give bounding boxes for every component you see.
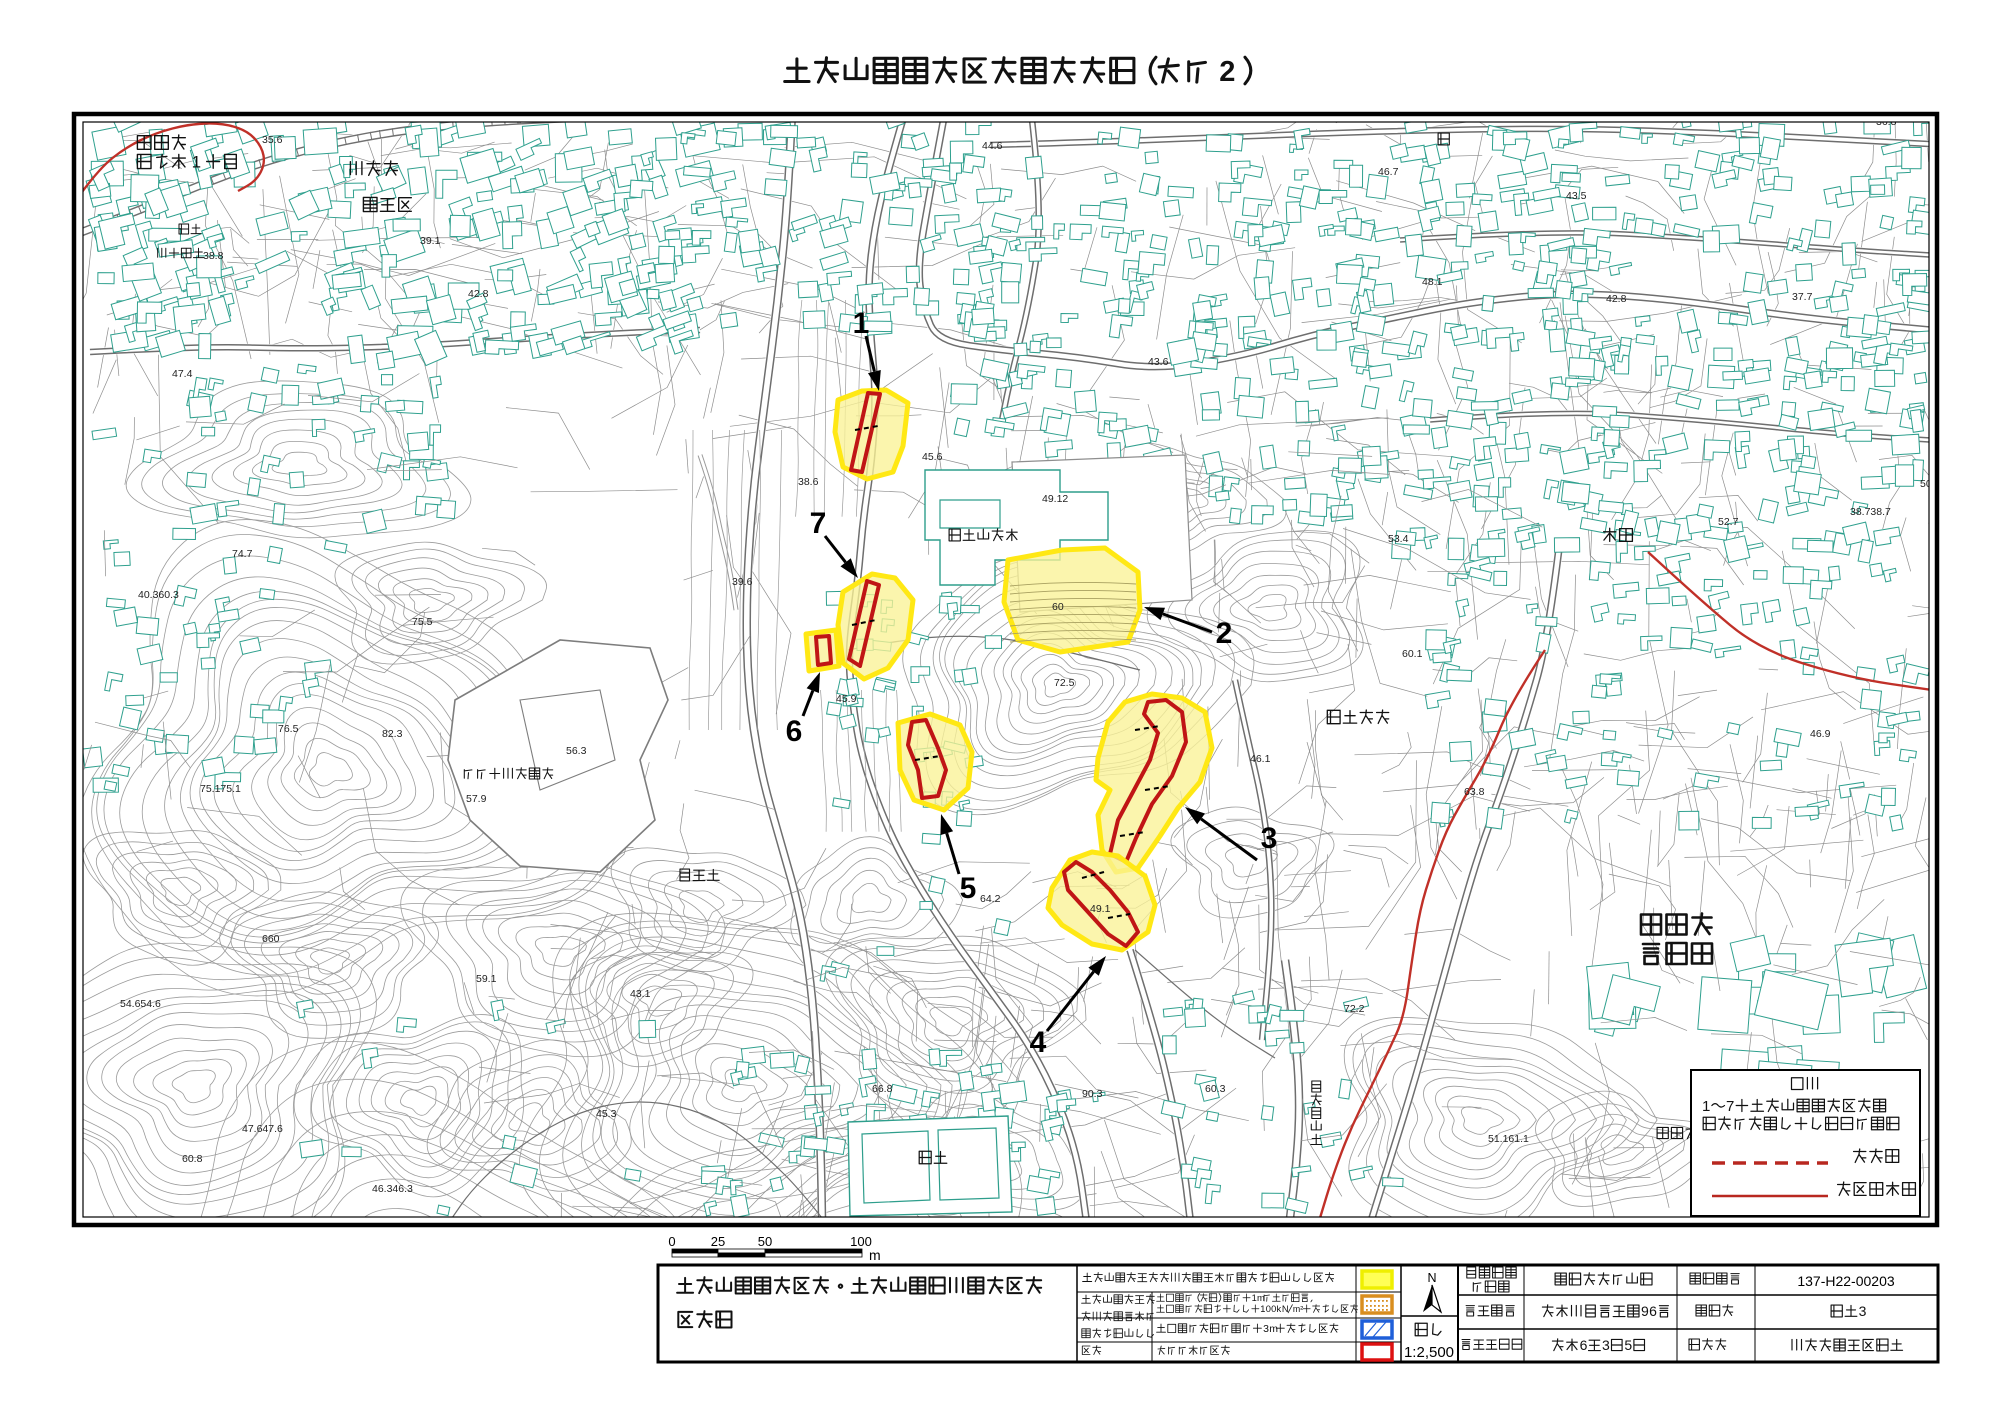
svg-text:63.8: 63.8	[1464, 786, 1485, 798]
svg-text:42.8: 42.8	[1606, 293, 1627, 305]
svg-text:2: 2	[1219, 56, 1235, 88]
svg-text:1: 1	[1252, 1293, 1257, 1303]
svg-text:137-H22-00203: 137-H22-00203	[1797, 1273, 1895, 1289]
svg-text:1: 1	[192, 153, 201, 172]
svg-text:75.5: 75.5	[412, 616, 433, 628]
svg-text:0: 0	[1271, 1304, 1276, 1314]
svg-text:0: 0	[668, 1234, 675, 1249]
svg-text:3: 3	[1602, 1337, 1610, 1353]
svg-text:1: 1	[1260, 1304, 1265, 1314]
svg-text:49.1: 49.1	[1090, 903, 1111, 915]
svg-text:2: 2	[1216, 617, 1233, 650]
svg-text:6: 6	[1580, 1337, 1588, 1353]
svg-text:39.1: 39.1	[420, 235, 441, 247]
svg-text:72.2: 72.2	[1344, 1003, 1365, 1015]
svg-text:60.3: 60.3	[1205, 1083, 1226, 1095]
svg-text:m²: m²	[1293, 1304, 1303, 1314]
svg-text:5: 5	[1624, 1337, 1632, 1353]
svg-text:47.4: 47.4	[172, 368, 193, 380]
svg-text:46.1: 46.1	[1250, 753, 1271, 765]
svg-text:48.1: 48.1	[1422, 276, 1443, 288]
svg-text:38.8: 38.8	[203, 250, 224, 262]
svg-text:45.3: 45.3	[596, 1108, 617, 1120]
svg-text:64.2: 64.2	[980, 893, 1001, 905]
svg-text:56.3: 56.3	[566, 745, 587, 757]
svg-text:m: m	[869, 1247, 881, 1263]
svg-text:3: 3	[1263, 1323, 1269, 1335]
svg-text:3: 3	[1859, 1303, 1867, 1319]
svg-text:66.8: 66.8	[872, 1083, 893, 1095]
svg-text:82.3: 82.3	[382, 728, 403, 740]
svg-text:42.8: 42.8	[468, 288, 489, 300]
svg-text:39.6: 39.6	[732, 576, 753, 588]
svg-text:k: k	[1277, 1304, 1282, 1314]
svg-text:47.647.6: 47.647.6	[242, 1123, 283, 1135]
svg-text:6: 6	[786, 715, 803, 748]
svg-text:49.12: 49.12	[1042, 493, 1068, 505]
svg-text:N: N	[1427, 1271, 1436, 1285]
svg-text:44.6: 44.6	[982, 140, 1003, 152]
svg-text:75.175.1: 75.175.1	[200, 783, 241, 795]
svg-text:76.5: 76.5	[278, 723, 299, 735]
svg-text:35.6: 35.6	[262, 134, 283, 146]
svg-text:43.5: 43.5	[1566, 190, 1587, 202]
svg-text:43.1: 43.1	[630, 988, 651, 1000]
svg-text:74.7: 74.7	[232, 548, 253, 560]
svg-text:7: 7	[1726, 1098, 1734, 1115]
svg-text:660: 660	[262, 933, 280, 945]
svg-text:90.3: 90.3	[1082, 1088, 1103, 1100]
svg-text:52.7: 52.7	[1718, 516, 1739, 528]
svg-text:6: 6	[1649, 1303, 1657, 1319]
svg-text:46.9: 46.9	[1810, 728, 1831, 740]
svg-text:51.161.1: 51.161.1	[1488, 1133, 1529, 1145]
svg-text:45.6: 45.6	[922, 451, 943, 463]
svg-text:1: 1	[853, 307, 870, 340]
svg-text:9: 9	[1641, 1303, 1649, 1319]
svg-text:53.4: 53.4	[1388, 533, 1409, 545]
svg-text:m: m	[1257, 1293, 1265, 1303]
svg-text:57.9: 57.9	[466, 793, 487, 805]
svg-text:50: 50	[758, 1234, 772, 1249]
svg-text:60.8: 60.8	[182, 1153, 203, 1165]
svg-text:40.360.3: 40.360.3	[138, 589, 179, 601]
svg-text:72.5: 72.5	[1054, 677, 1075, 689]
svg-text:1: 1	[1702, 1098, 1710, 1115]
svg-text:60: 60	[1052, 601, 1064, 613]
svg-text:38.6: 38.6	[798, 476, 819, 488]
svg-text:3: 3	[1261, 822, 1278, 855]
svg-text:5: 5	[960, 872, 977, 905]
svg-text:1:2,500: 1:2,500	[1404, 1344, 1454, 1361]
svg-text:N: N	[1282, 1304, 1289, 1314]
svg-text:46.7: 46.7	[1378, 166, 1399, 178]
svg-text:0: 0	[1266, 1304, 1271, 1314]
svg-text:25: 25	[711, 1234, 725, 1249]
svg-text:37.7: 37.7	[1792, 291, 1813, 303]
svg-text:59.1: 59.1	[476, 973, 497, 985]
svg-text:43.6: 43.6	[1148, 356, 1169, 368]
svg-text:54.654.6: 54.654.6	[120, 998, 161, 1010]
svg-text:4: 4	[1030, 1026, 1047, 1059]
svg-text:45.9: 45.9	[836, 693, 857, 705]
svg-text:38.738.7: 38.738.7	[1850, 506, 1891, 518]
svg-text:7: 7	[810, 507, 827, 540]
svg-text:m: m	[1269, 1323, 1278, 1335]
svg-text:60.1: 60.1	[1402, 648, 1423, 660]
svg-text:46.346.3: 46.346.3	[372, 1183, 413, 1195]
